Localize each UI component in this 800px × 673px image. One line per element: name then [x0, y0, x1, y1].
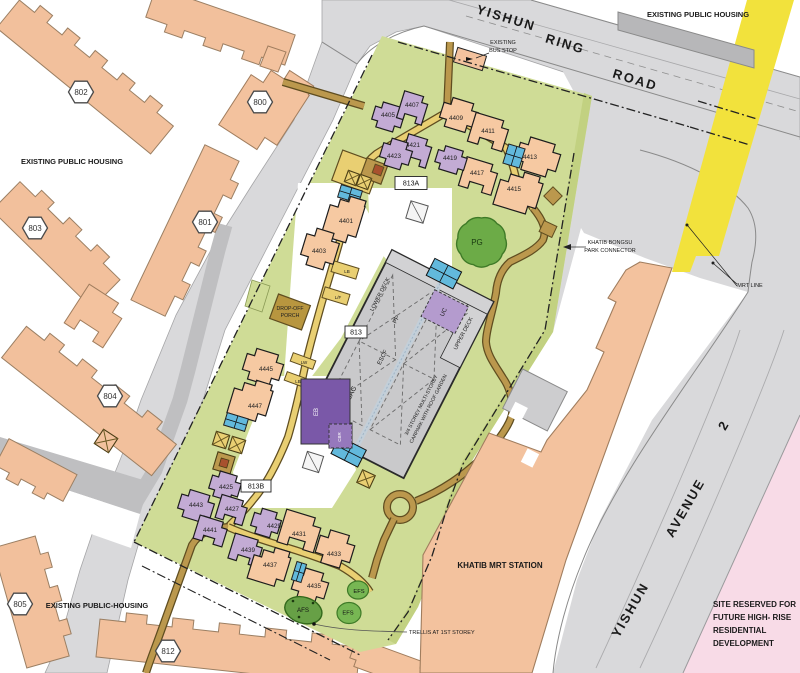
svg-text:EXISTING: EXISTING — [490, 40, 516, 46]
svg-text:4415: 4415 — [507, 186, 522, 193]
svg-text:PARK CONNECTOR: PARK CONNECTOR — [584, 248, 635, 254]
svg-text:FUTURE HIGH- RISE: FUTURE HIGH- RISE — [713, 613, 792, 622]
svg-text:AFS: AFS — [297, 607, 309, 614]
svg-text:813: 813 — [350, 330, 362, 337]
svg-text:4443: 4443 — [189, 502, 204, 509]
svg-text:813B: 813B — [248, 484, 265, 491]
svg-text:4425: 4425 — [219, 484, 234, 491]
svg-text:803: 803 — [28, 224, 42, 233]
svg-text:4407: 4407 — [405, 102, 420, 109]
svg-text:MRT LINE: MRT LINE — [737, 283, 763, 289]
svg-text:4433: 4433 — [327, 551, 342, 558]
svg-text:4439: 4439 — [241, 547, 256, 554]
svg-text:813A: 813A — [403, 181, 420, 188]
svg-text:4409: 4409 — [449, 115, 464, 122]
svg-text:RESIDENTIAL: RESIDENTIAL — [713, 626, 766, 635]
svg-text:800: 800 — [253, 98, 267, 107]
svg-text:EXISTING PUBLIC HOUSING: EXISTING PUBLIC HOUSING — [21, 157, 123, 166]
svg-text:4413: 4413 — [523, 154, 538, 161]
svg-text:4423: 4423 — [387, 153, 402, 160]
svg-text:KHATIB MRT STATION: KHATIB MRT STATION — [457, 561, 543, 570]
svg-text:EXISTING PUBLIC HOUSING: EXISTING PUBLIC HOUSING — [647, 10, 749, 19]
svg-text:4431: 4431 — [292, 531, 307, 538]
svg-text:4435: 4435 — [307, 583, 322, 590]
svg-text:EFS: EFS — [353, 589, 364, 595]
svg-text:4419: 4419 — [443, 155, 458, 162]
svg-text:CBR: CBR — [337, 432, 342, 442]
svg-text:EB: EB — [314, 408, 320, 416]
svg-text:4417: 4417 — [470, 170, 485, 177]
svg-text:LB: LB — [344, 269, 350, 274]
svg-text:4427: 4427 — [225, 506, 240, 513]
svg-text:804: 804 — [103, 392, 117, 401]
svg-text:DEVELOPMENT: DEVELOPMENT — [713, 639, 774, 648]
svg-text:4445: 4445 — [259, 366, 274, 373]
svg-text:TRELLIS AT 1ST STOREY: TRELLIS AT 1ST STOREY — [409, 630, 475, 636]
svg-text:KHATIB BONGSU: KHATIB BONGSU — [588, 240, 633, 246]
svg-text:801: 801 — [198, 218, 212, 227]
svg-text:4401: 4401 — [339, 218, 354, 225]
svg-text:LB: LB — [295, 379, 301, 384]
svg-text:L/F: L/F — [335, 295, 342, 300]
svg-text:LW: LW — [301, 360, 308, 365]
svg-text:EFS: EFS — [342, 611, 353, 617]
svg-text:4429: 4429 — [267, 523, 282, 530]
svg-text:DROP-OFF: DROP-OFF — [276, 306, 303, 312]
svg-text:4447: 4447 — [248, 403, 263, 410]
svg-text:EXISTING PUBLIC-HOUSING: EXISTING PUBLIC-HOUSING — [46, 601, 149, 610]
svg-text:4405: 4405 — [381, 112, 396, 119]
svg-text:4403: 4403 — [312, 248, 327, 255]
svg-text:SITE RESERVED FOR: SITE RESERVED FOR — [713, 600, 796, 609]
svg-text:PORCH: PORCH — [281, 313, 300, 319]
svg-text:4411: 4411 — [481, 128, 495, 135]
svg-text:805: 805 — [13, 600, 27, 609]
svg-text:BUS STOP: BUS STOP — [489, 48, 517, 54]
svg-text:812: 812 — [161, 647, 175, 656]
svg-text:802: 802 — [74, 88, 88, 97]
svg-text:4437: 4437 — [263, 562, 278, 569]
svg-text:4441: 4441 — [203, 527, 218, 534]
svg-text:PG: PG — [471, 238, 483, 247]
